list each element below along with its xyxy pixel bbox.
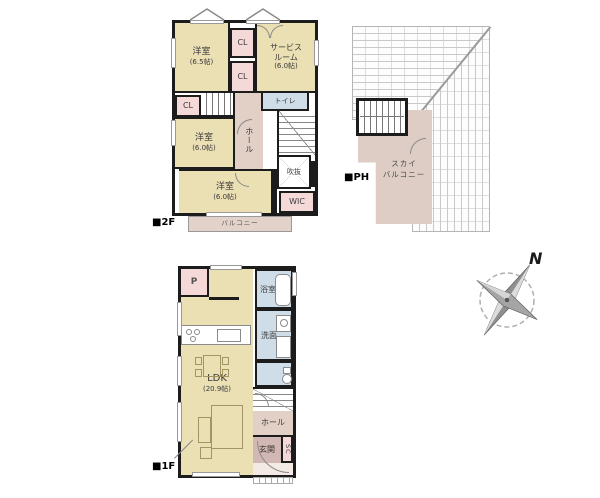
f2-stairs-lower: [277, 111, 315, 155]
f2-bedroom-2: 洋室 (6.0帖): [175, 117, 235, 169]
window: [314, 40, 319, 66]
pantry-label: P: [191, 277, 198, 288]
room-size: (6.0帖): [274, 62, 298, 70]
f2-void: 吹抜: [277, 155, 311, 189]
toilet-bowl-icon: [282, 374, 292, 384]
f1-bath: 浴室: [255, 269, 293, 309]
window: [210, 265, 242, 270]
floor-ph-plan: スカイ バルコニー ■PH: [340, 0, 500, 245]
vanity-sink: [276, 336, 291, 358]
wic-label: WIC: [289, 197, 305, 207]
dining-table: [203, 355, 221, 377]
stair-divider: [360, 116, 404, 117]
room-size: (6.5帖): [190, 58, 214, 66]
toilet-tank: [283, 367, 291, 374]
f1-toilet: [255, 361, 293, 387]
roof-chevron-icon: [244, 7, 282, 20]
stove-burner-icon: [186, 329, 192, 335]
toilet-label: トイレ: [275, 97, 296, 105]
window: [292, 272, 297, 296]
wall-segment: [273, 169, 277, 213]
f2-wic: WIC: [279, 191, 315, 213]
kitchen-sink: [217, 329, 241, 342]
window: [177, 356, 182, 386]
f1-hall: ホール: [253, 411, 293, 435]
ph-stairs: [356, 98, 408, 136]
window: [177, 302, 182, 336]
coffee-table: [200, 447, 212, 459]
balcony-label: バルコニー: [221, 220, 258, 228]
dining-chair: [195, 357, 202, 365]
f2-bedroom-1: 洋室 (6.5帖): [175, 23, 230, 93]
porch-step: [253, 477, 293, 484]
window: [190, 20, 224, 24]
room-size: (6.0帖): [213, 193, 237, 201]
f2-outer-walls: 洋室 (6.5帖) CL CL サービス ルーム (6.0帖) CL ホール ト…: [172, 20, 318, 216]
closet-label: CL: [237, 72, 247, 82]
dining-chair: [222, 357, 229, 365]
room-size: (20.9帖): [191, 385, 243, 393]
f1-outer-walls: LDK (20.9帖) P 浴室 洗面: [178, 266, 296, 478]
compass-rose: N: [463, 246, 553, 344]
bathtub: [275, 274, 291, 306]
window: [177, 402, 182, 442]
floor-2f-plan: 洋室 (6.5帖) CL CL サービス ルーム (6.0帖) CL ホール ト…: [0, 0, 340, 240]
room-name: サービス ルーム: [270, 43, 302, 62]
sofa-side: [198, 417, 211, 443]
room-name: 洋室: [216, 182, 234, 193]
closet-label: CL: [183, 101, 193, 111]
sky-balcony-label: スカイ バルコニー: [378, 158, 430, 180]
f2-stairs-upper: [201, 93, 235, 117]
f1-pantry: P: [181, 269, 209, 297]
f2-bedroom-3: 洋室 (6.0帖): [179, 169, 273, 213]
compass-north-label: N: [529, 249, 543, 268]
stove-burner-icon: [190, 336, 196, 342]
wall-segment: [209, 297, 239, 300]
f2-closet-2: CL: [230, 61, 255, 93]
window: [171, 120, 176, 146]
floor-ph-label: ■PH: [344, 172, 369, 183]
dining-chair: [222, 369, 229, 377]
floorplan-page: { "f2": { "label": "■2F", "room_main1": …: [0, 0, 600, 498]
floor-2f-label: ■2F: [152, 217, 175, 228]
floor-1f-label: ■1F: [152, 461, 175, 472]
f2-balcony: バルコニー: [188, 216, 292, 232]
washer-drum-icon: [280, 319, 288, 327]
wall-segment: [311, 161, 315, 187]
window: [192, 472, 240, 477]
floor-1f-plan: LDK (20.9帖) P 浴室 洗面: [0, 258, 340, 498]
window: [171, 38, 176, 68]
window: [246, 20, 280, 24]
dining-chair: [195, 369, 202, 377]
hall-label: ホール: [261, 418, 285, 428]
f1-washroom: 洗面: [255, 309, 293, 361]
roof-chevron-icon: [188, 7, 226, 20]
f2-closet-3: CL: [175, 95, 201, 117]
f2-closet-1: CL: [230, 28, 255, 58]
sofa: [211, 405, 243, 449]
room-name: 洋室: [192, 47, 210, 58]
closet-label: CL: [237, 38, 247, 48]
room-size: (6.0帖): [192, 144, 216, 152]
room-name: 洋室: [195, 133, 213, 144]
stove-burner-icon: [194, 329, 200, 335]
f2-toilet: トイレ: [261, 91, 309, 111]
void-label: 吹抜: [286, 168, 302, 176]
